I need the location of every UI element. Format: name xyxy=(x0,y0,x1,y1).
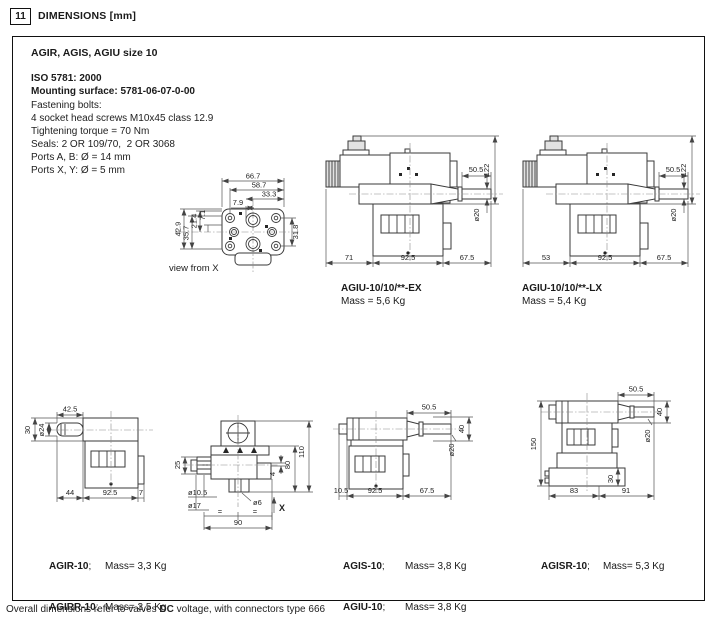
dim-label: 7.1 xyxy=(198,210,207,220)
model-row: AGISR-10;Mass= 5,3 Kg xyxy=(541,560,664,574)
footer-bold: DC xyxy=(159,604,173,615)
dim-label: ø24 xyxy=(37,424,46,437)
dim-label: = xyxy=(253,507,258,516)
model-labels-agir: AGIR-10;Mass= 3,3 Kg AGIRR-10;Mass= 3,5 … xyxy=(49,533,166,641)
model-mass: Mass= 5,3 Kg xyxy=(603,561,664,572)
model-row: AGIU-10;Mass= 3,8 Kg xyxy=(343,601,466,615)
model-mass: Mass = 5,6 Kg xyxy=(341,295,422,308)
dim-label: 58.7 xyxy=(252,181,267,190)
dim-label: 53 xyxy=(542,253,550,262)
model-label-agiu-ex: AGIU-10/10/**-EX Mass = 5,6 Kg xyxy=(341,282,422,308)
footer-text: Overall dimensions refer to valves xyxy=(6,604,159,615)
dim-label: ø20 xyxy=(472,209,481,222)
model-label-agiu-lx: AGIU-10/10/**-LX Mass = 5,4 Kg xyxy=(522,282,602,308)
dim-label: 67.5 xyxy=(657,253,672,262)
model-name: AGIU-10/10/**-LX xyxy=(522,282,602,295)
dim-label: 42.5 xyxy=(63,405,78,414)
footer-note: Overall dimensions refer to valves DC vo… xyxy=(6,604,325,615)
footer-text: voltage, with connectors type 666 xyxy=(174,604,325,615)
dim-label: 67.5 xyxy=(460,253,475,262)
dim-label: = xyxy=(218,507,223,516)
dim-label: 31.8 xyxy=(291,225,300,240)
separator: ; xyxy=(88,561,91,572)
section-number-box: 11 xyxy=(10,8,31,25)
drawing-front-view-x: 110 80 4 25 ø10.5 ø17 ø6 X = = xyxy=(173,415,313,530)
dim-label: 33.3 xyxy=(262,190,277,199)
drawing-agiu-ex: 50.5 122 ø20 71 92.5 67.5 xyxy=(326,136,503,267)
dim-label: 7 xyxy=(139,488,143,497)
dim-label: 30 xyxy=(23,426,32,434)
dim-label: 4 xyxy=(268,472,277,476)
content-frame: AGIR, AGIS, AGIU size 10 ISO 5781: 2000 … xyxy=(12,36,705,601)
drawing-agiu-lx: 50.5 122 ø20 53 92.5 67.5 xyxy=(523,136,700,267)
dim-label: 40 xyxy=(655,408,664,416)
dim-label: ø20 xyxy=(447,444,456,457)
dim-label: 44 xyxy=(66,488,74,497)
model-name: AGISR-10 xyxy=(541,561,587,572)
dim-label: ø17 xyxy=(188,501,201,510)
technical-drawings: 66.7 58.7 33.3 7.9 42.9 35.7 21.4 7.1 31… xyxy=(13,37,704,600)
dim-label: ø6 xyxy=(253,498,262,507)
dim-label: 83 xyxy=(570,486,578,495)
model-labels-agisr: AGISR-10;Mass= 5,3 Kg xyxy=(541,533,664,601)
dim-label: 50.5 xyxy=(629,385,644,394)
dim-label: 92.5 xyxy=(103,488,118,497)
drawing-agisr: 50.5 40 ø20 150 30 83 91 xyxy=(529,385,671,501)
model-labels-agis: AGIS-10;Mass= 3,8 Kg AGIU-10;Mass= 3,8 K… xyxy=(343,533,466,641)
dim-label: 92.5 xyxy=(598,253,613,262)
drawing-agis: 50.5 40 ø20 10.5 92.5 67.5 xyxy=(333,403,473,501)
dim-label: 67.5 xyxy=(420,486,435,495)
model-mass: Mass= 3,8 Kg xyxy=(405,561,466,572)
datasheet-page: { "page": { "section_number": "11", "sec… xyxy=(0,0,714,633)
dim-label: 122 xyxy=(482,164,491,177)
dim-label: 25 xyxy=(173,461,182,469)
dim-label: 92.5 xyxy=(401,253,416,262)
model-row: AGIS-10;Mass= 3,8 Kg xyxy=(343,560,466,574)
section-title: DIMENSIONS [mm] xyxy=(38,10,136,22)
model-name: AGIU-10 xyxy=(343,602,382,613)
dim-label: 122 xyxy=(679,164,688,177)
dim-label: 30 xyxy=(606,475,615,483)
dim-label: ø20 xyxy=(643,430,652,443)
dim-label: 66.7 xyxy=(246,172,261,181)
dim-label: 91 xyxy=(622,486,630,495)
dim-label: 92.5 xyxy=(368,486,383,495)
dim-label: ø20 xyxy=(669,209,678,222)
separator: ; xyxy=(382,561,385,572)
dim-label: 80 xyxy=(283,461,292,469)
dim-label: 71 xyxy=(345,253,353,262)
separator: ; xyxy=(587,561,590,572)
view-from-x-label: view from X xyxy=(169,263,219,274)
model-mass: Mass = 5,4 Kg xyxy=(522,295,602,308)
drawing-view-from-x: 66.7 58.7 33.3 7.9 42.9 35.7 21.4 7.1 31… xyxy=(174,172,301,274)
model-mass: Mass= 3,3 Kg xyxy=(105,561,166,572)
dim-label: 90 xyxy=(234,518,242,527)
dim-label: 110 xyxy=(297,446,306,458)
dim-label: 10.5 xyxy=(334,486,349,495)
model-name: AGIR-10 xyxy=(49,561,88,572)
drawing-agir: 42.5 30 ø24 44 92.5 7 xyxy=(23,405,153,503)
model-name: AGIS-10 xyxy=(343,561,382,572)
dim-label: 50.5 xyxy=(422,403,437,412)
model-row: AGIR-10;Mass= 3,3 Kg xyxy=(49,560,166,574)
model-name: AGIU-10/10/**-EX xyxy=(341,282,422,295)
dim-label: 150 xyxy=(529,438,538,451)
dim-label: 40 xyxy=(457,425,466,433)
port-x-label: X xyxy=(279,503,285,513)
model-mass: Mass= 3,8 Kg xyxy=(405,602,466,613)
separator: ; xyxy=(382,602,385,613)
dim-label: 7.9 xyxy=(233,198,243,207)
